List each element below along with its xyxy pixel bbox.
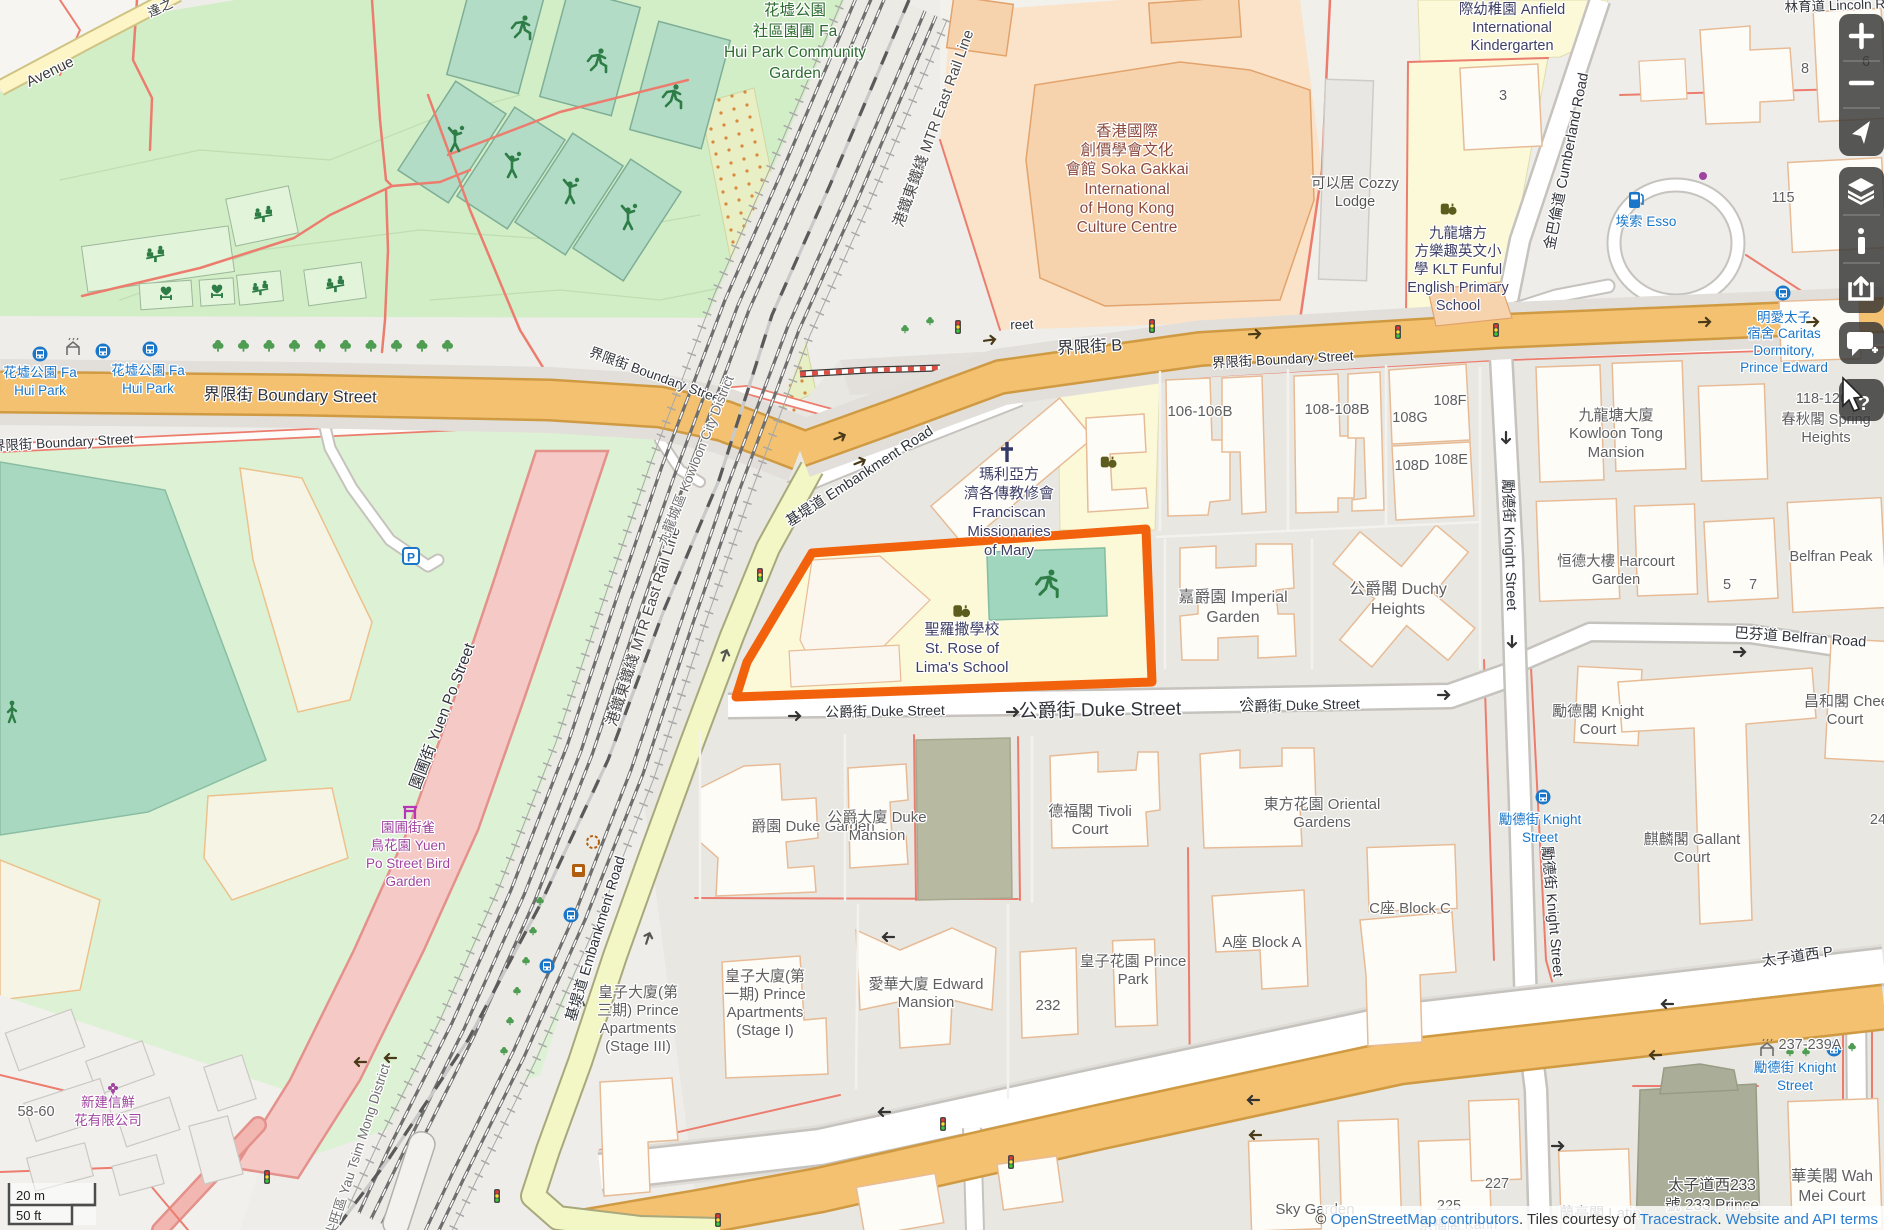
svg-text:Heights: Heights xyxy=(1371,601,1425,618)
svg-text:Garden: Garden xyxy=(769,65,821,82)
svg-text:Dormitory,: Dormitory, xyxy=(1753,343,1814,358)
svg-text:公爵閣 Duchy: 公爵閣 Duchy xyxy=(1349,580,1447,598)
svg-text:Hui Park: Hui Park xyxy=(14,383,66,398)
svg-text:園圃街雀: 園圃街雀 xyxy=(381,820,435,835)
svg-text:Hui Park Community: Hui Park Community xyxy=(724,44,866,61)
svg-text:Gardens: Gardens xyxy=(1293,814,1351,831)
svg-text:50 ft: 50 ft xyxy=(16,1208,42,1223)
svg-text:皇子大廈(第: 皇子大廈(第 xyxy=(598,983,678,1001)
svg-text:公爵街 Duke Street: 公爵街 Duke Street xyxy=(825,702,945,720)
svg-text:108G: 108G xyxy=(1392,410,1427,426)
svg-text:232: 232 xyxy=(1035,997,1060,1014)
svg-text:3: 3 xyxy=(1499,88,1507,104)
svg-text:108-108B: 108-108B xyxy=(1304,401,1369,418)
svg-text:Culture Centre: Culture Centre xyxy=(1077,219,1178,236)
svg-text:昌和閣 Chee: 昌和閣 Chee xyxy=(1804,693,1884,710)
svg-text:九龍塘大廈: 九龍塘大廈 xyxy=(1578,406,1653,424)
svg-text:5: 5 xyxy=(1723,577,1731,593)
svg-text:7: 7 xyxy=(1749,577,1757,593)
svg-text:reet: reet xyxy=(1010,317,1034,333)
svg-text:界限街 B: 界限街 B xyxy=(1057,335,1123,357)
svg-text:可以居 Cozzy: 可以居 Cozzy xyxy=(1311,176,1400,192)
svg-text:A座 Block A: A座 Block A xyxy=(1222,934,1301,951)
svg-text:Mansion: Mansion xyxy=(898,994,955,1011)
svg-text:115: 115 xyxy=(1771,190,1794,206)
svg-text:Park: Park xyxy=(1118,971,1149,988)
svg-text:華美閣 Wah: 華美閣 Wah xyxy=(1791,1167,1873,1185)
svg-text:方樂趣英文小: 方樂趣英文小 xyxy=(1415,242,1502,260)
svg-text:Garden: Garden xyxy=(1206,609,1259,626)
svg-text:新建信鮮: 新建信鮮 xyxy=(81,1095,135,1110)
svg-text:Court: Court xyxy=(1072,821,1110,838)
svg-text:24: 24 xyxy=(1870,812,1884,828)
svg-text:香港國際: 香港國際 xyxy=(1096,122,1159,140)
svg-text:Heights: Heights xyxy=(1801,430,1850,446)
svg-text:恒德大樓 Harcourt: 恒德大樓 Harcourt xyxy=(1557,553,1675,570)
svg-text:C座 Block C: C座 Block C xyxy=(1369,900,1451,917)
svg-text:106-106B: 106-106B xyxy=(1167,403,1232,420)
svg-text:勵德街 Knight: 勵德街 Knight xyxy=(1754,1060,1837,1075)
svg-text:227: 227 xyxy=(1485,1176,1509,1192)
svg-text:Mei Court: Mei Court xyxy=(1798,1188,1866,1205)
svg-text:太子道西233: 太子道西233 xyxy=(1668,1176,1756,1194)
svg-text:International: International xyxy=(1084,181,1169,198)
svg-text:際幼稚園 Anfield: 際幼稚園 Anfield xyxy=(1459,1,1565,18)
svg-text:237-239A: 237-239A xyxy=(1779,1037,1842,1053)
svg-text:Kindergarten: Kindergarten xyxy=(1470,38,1553,54)
svg-text:公爵街 Duke Street: 公爵街 Duke Street xyxy=(1018,698,1182,723)
svg-text:of Hong Kong: of Hong Kong xyxy=(1080,200,1175,217)
svg-text:鳥花園 Yuen: 鳥花園 Yuen xyxy=(370,838,445,853)
svg-text:宿舍 Caritas: 宿舍 Caritas xyxy=(1747,325,1821,341)
svg-text:Court: Court xyxy=(1827,711,1865,728)
svg-text:愛華大廈 Edward: 愛華大廈 Edward xyxy=(868,975,983,993)
svg-text:St. Rose of: St. Rose of xyxy=(925,640,1000,657)
svg-text:Court: Court xyxy=(1674,849,1712,866)
svg-text:會館 Soka Gakkai: 會館 Soka Gakkai xyxy=(1065,160,1188,178)
svg-text:三期) Prince: 三期) Prince xyxy=(597,1002,679,1019)
svg-text:皇子花園 Prince: 皇子花園 Prince xyxy=(1080,953,1187,970)
svg-text:of Mary: of Mary xyxy=(984,542,1035,559)
svg-text:一期) Prince: 一期) Prince xyxy=(724,986,806,1003)
svg-text:English Primary: English Primary xyxy=(1407,280,1509,296)
svg-text:九龍塘方: 九龍塘方 xyxy=(1429,225,1487,242)
svg-text:(Stage I): (Stage I) xyxy=(736,1022,794,1039)
svg-text:Lima's School: Lima's School xyxy=(916,659,1009,676)
svg-text:Lodge: Lodge xyxy=(1335,194,1375,210)
svg-text:花墟公園: 花墟公園 xyxy=(764,1,826,19)
svg-text:108E: 108E xyxy=(1434,452,1468,468)
svg-text:Apartments: Apartments xyxy=(727,1004,804,1021)
svg-text:社區園圃 Fa: 社區園圃 Fa xyxy=(753,22,838,40)
svg-text:8: 8 xyxy=(1801,61,1809,77)
svg-text:P: P xyxy=(407,551,415,565)
svg-text:創價學會文化: 創價學會文化 xyxy=(1080,140,1173,159)
svg-text:Street: Street xyxy=(1777,1078,1813,1093)
svg-text:Garden: Garden xyxy=(1592,572,1640,588)
svg-text:埃索 Esso: 埃索 Esso xyxy=(1616,214,1677,229)
svg-text:花墟公園 Fa: 花墟公園 Fa xyxy=(111,363,185,378)
svg-text:Street: Street xyxy=(1522,830,1558,845)
svg-text:108F: 108F xyxy=(1433,393,1466,409)
svg-text:Missionaries: Missionaries xyxy=(967,523,1050,540)
svg-text:20 m: 20 m xyxy=(16,1188,45,1203)
svg-text:Belfran Peak: Belfran Peak xyxy=(1789,549,1873,565)
svg-text:108D: 108D xyxy=(1395,458,1430,474)
svg-text:Apartments: Apartments xyxy=(600,1020,677,1037)
svg-text:58-60: 58-60 xyxy=(17,1104,54,1120)
svg-text:勵德閣 Knight: 勵德閣 Knight xyxy=(1552,702,1645,720)
svg-text:嘉爵園 Imperial: 嘉爵園 Imperial xyxy=(1178,588,1287,606)
svg-text:麒麟閣 Gallant: 麒麟閣 Gallant xyxy=(1644,831,1742,848)
svg-text:Garden: Garden xyxy=(385,874,430,889)
svg-text:Po Street Bird: Po Street Bird xyxy=(366,856,450,871)
svg-text:公爵街 Duke Street: 公爵街 Duke Street xyxy=(1240,695,1360,714)
svg-text:明愛太子: 明愛太子 xyxy=(1757,310,1811,325)
svg-text:Franciscan: Franciscan xyxy=(972,504,1045,521)
svg-text:School: School xyxy=(1436,298,1480,314)
svg-text:Prince Edward: Prince Edward xyxy=(1740,360,1828,375)
svg-text:Kowloon Tong: Kowloon Tong xyxy=(1569,425,1663,442)
svg-text:聖羅撒學校: 聖羅撒學校 xyxy=(924,620,999,638)
svg-text:花有限公司: 花有限公司 xyxy=(74,1113,142,1128)
svg-text:瑪利亞方: 瑪利亞方 xyxy=(979,466,1039,483)
svg-text:Mansion: Mansion xyxy=(1588,444,1645,461)
svg-text:Court: Court xyxy=(1580,721,1618,738)
svg-text:(Stage III): (Stage III) xyxy=(605,1038,671,1055)
svg-text:© OpenStreetMap contributors.: © OpenStreetMap contributors. Tiles cour… xyxy=(1315,1211,1878,1228)
svg-text:勵德街 Knight: 勵德街 Knight xyxy=(1499,812,1582,827)
svg-text:International: International xyxy=(1472,20,1552,36)
svg-text:德福閣 Tivoli: 德福閣 Tivoli xyxy=(1048,802,1132,820)
svg-text:Hui Park: Hui Park xyxy=(122,381,174,396)
svg-text:濟各傳教修會: 濟各傳教修會 xyxy=(964,485,1054,502)
svg-text:東方花園 Oriental: 東方花園 Oriental xyxy=(1264,796,1381,813)
svg-text:皇子大廈(第: 皇子大廈(第 xyxy=(725,967,805,985)
svg-text:界限街 Boundary Street: 界限街 Boundary Street xyxy=(203,384,377,406)
svg-text:公爵大廈 Duke: 公爵大廈 Duke xyxy=(827,808,926,826)
svg-text:Mansion: Mansion xyxy=(849,827,906,844)
svg-text:學 KLT Funful: 學 KLT Funful xyxy=(1414,260,1502,278)
svg-text:花墟公園 Fa: 花墟公園 Fa xyxy=(3,365,77,380)
